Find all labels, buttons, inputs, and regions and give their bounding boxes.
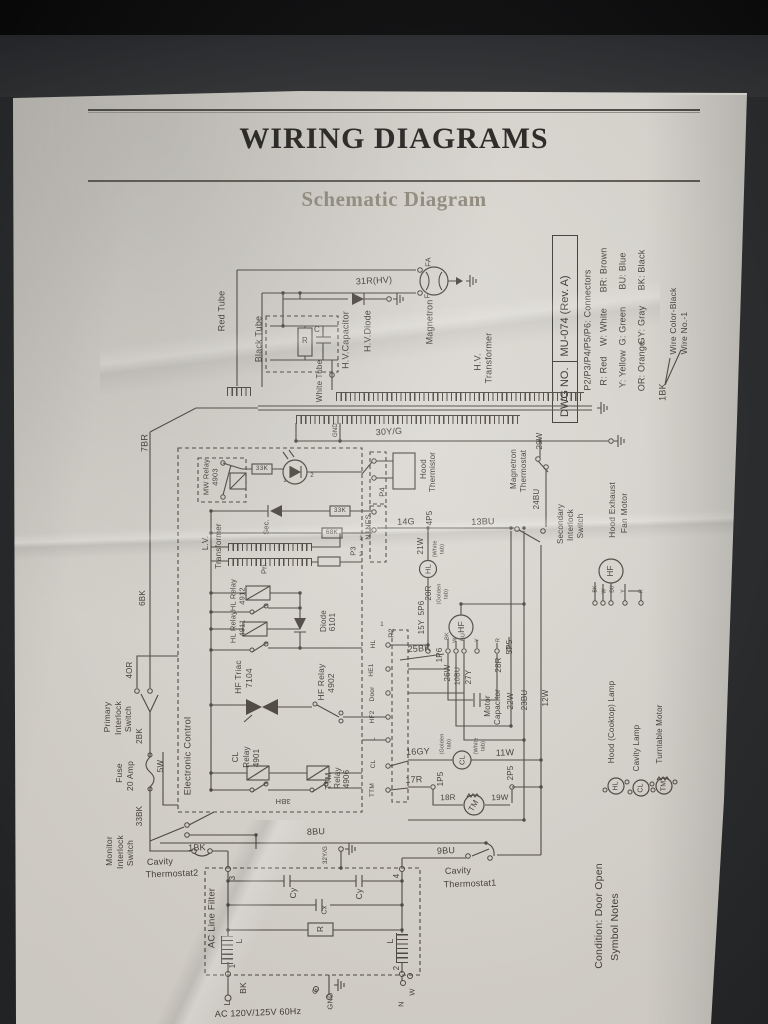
schematic-label: 4906 bbox=[343, 770, 351, 789]
schematic-label: 4901 bbox=[253, 749, 261, 768]
schematic-label: W bbox=[453, 637, 459, 642]
schematic-label: GY: Gray bbox=[638, 306, 647, 345]
schematic-label: OR: Orange bbox=[638, 341, 647, 392]
schematic-label: 4912 bbox=[238, 587, 246, 605]
manual-page: WIRING DIAGRAMS Schematic Diagram DWG NO… bbox=[0, 0, 768, 1024]
secondary-interlock-label: Secondary bbox=[557, 504, 565, 544]
schematic-label: 5W bbox=[157, 760, 165, 772]
schematic-label: R bbox=[316, 926, 325, 932]
schematic-label: 22W bbox=[507, 692, 515, 709]
schematic-label: Y bbox=[475, 638, 481, 642]
schematic-label: L bbox=[235, 939, 244, 944]
schematic-label: 1P6 bbox=[436, 648, 444, 663]
schematic-label: Sec. bbox=[262, 519, 270, 535]
ttm-relay-label: TTM bbox=[325, 772, 333, 789]
magnetron-label: Magnetron bbox=[426, 300, 435, 345]
schematic-label: 5P6 bbox=[418, 601, 426, 616]
schematic-label: 6101 bbox=[329, 613, 337, 632]
schematic-label: Thermistor bbox=[429, 452, 437, 492]
schematic-label: Transformer bbox=[215, 523, 223, 568]
schematic-label: 15Y bbox=[418, 620, 426, 635]
mw-relay-label: MW Relay bbox=[202, 459, 210, 495]
monitor-interlock-label: Monitor bbox=[105, 836, 114, 866]
schematic-label: Y: Yellow bbox=[619, 350, 628, 388]
schematic-label: 7104 bbox=[245, 668, 254, 688]
schematic-label: 1 bbox=[359, 536, 363, 542]
red-tube-label: Red Tube bbox=[218, 291, 227, 332]
schematic-label: L bbox=[224, 1001, 232, 1006]
schematic-label: 11W bbox=[496, 748, 515, 758]
schematic-label: Relay bbox=[243, 746, 251, 767]
schematic-label: HL bbox=[371, 640, 378, 649]
schematic-label: 4P5 bbox=[426, 511, 434, 526]
schematic-label: 18R bbox=[440, 794, 456, 803]
motor-capacitor-label: Motor bbox=[484, 695, 492, 716]
black-tube-label: Black Tube bbox=[255, 316, 264, 363]
filter-choke-left bbox=[221, 936, 233, 964]
schematic-label: TM bbox=[661, 781, 668, 792]
schematic-label: FA bbox=[424, 257, 432, 267]
schematic-label: R bbox=[496, 638, 502, 642]
schematic-label: 27Y bbox=[465, 670, 473, 685]
schematic-label: 8BU bbox=[307, 827, 325, 837]
schematic-label: GND bbox=[333, 423, 339, 437]
schematic-label: HF2 bbox=[370, 711, 377, 724]
photo-top-black-bar bbox=[0, 0, 768, 35]
schematic-label: G bbox=[311, 988, 319, 994]
schematic-label: tab) bbox=[440, 544, 446, 554]
photo-background-shade bbox=[0, 35, 768, 97]
schematic-label: N bbox=[397, 1001, 405, 1007]
cavity-thermostat1-label: Cavity bbox=[445, 866, 472, 876]
schematic-label: Interlock bbox=[567, 509, 575, 541]
schematic-label: 4OR bbox=[126, 661, 134, 678]
schematic-label: F bbox=[423, 294, 431, 299]
schematic-label: 9BU bbox=[437, 846, 455, 856]
schematic-label: R: Red bbox=[600, 356, 609, 385]
schematic-label: BR: Brown bbox=[600, 248, 609, 293]
schematic-label: C bbox=[314, 326, 320, 334]
turntable-motor-legend: Turntable Motor bbox=[656, 704, 664, 763]
schematic-label: W bbox=[603, 589, 608, 594]
schematic-label: 23BU bbox=[521, 690, 529, 711]
schematic-label: 10BU bbox=[455, 667, 462, 685]
schematic-label: 29W bbox=[536, 432, 544, 449]
schematic-label: 19W bbox=[491, 794, 508, 803]
cavity-lamp-legend: Cavity Lamp bbox=[633, 725, 641, 772]
schematic-label: CL bbox=[458, 755, 466, 765]
schematic-label: 68K bbox=[326, 530, 338, 537]
schematic-label: 12W bbox=[542, 689, 550, 706]
schematic-label: 33K bbox=[256, 466, 268, 473]
schematic-label: HF bbox=[607, 565, 615, 576]
schematic-label: 2 bbox=[310, 473, 314, 479]
schematic-label: Switch bbox=[577, 514, 585, 539]
schematic-label: 16GY bbox=[406, 747, 430, 757]
hl-relay-4912-label: HL Relay bbox=[229, 579, 237, 611]
photographed-manual-page: { "page": {"title": "WIRING DIAGRAMS", "… bbox=[0, 0, 768, 1024]
schematic-label: 24BU bbox=[533, 489, 541, 510]
schematic-label: 6BK bbox=[139, 590, 147, 606]
hood-exhaust-fan-label: Hood Exhaust bbox=[608, 482, 617, 538]
schematic-label: 14G bbox=[397, 517, 415, 527]
schematic-label: Cy bbox=[355, 889, 364, 900]
wire-example-number: Wire No.-1 bbox=[680, 312, 689, 355]
diode-6101-label: Diode bbox=[320, 610, 328, 632]
schematic-label: BU bbox=[461, 633, 467, 641]
schematic-label: HE1 bbox=[369, 663, 376, 676]
schematic-label: tab) bbox=[481, 741, 487, 751]
fuse-label: Fuse bbox=[115, 763, 124, 783]
schematic-label: G: Green bbox=[619, 307, 628, 346]
schematic-label: Thermostat1 bbox=[443, 879, 496, 890]
schematic-label: L bbox=[386, 939, 395, 944]
schematic-label: 1 bbox=[380, 622, 384, 628]
filter-choke-right bbox=[396, 933, 408, 963]
schematic-label: Capacitor bbox=[494, 689, 502, 725]
schematic-label: BU bbox=[611, 585, 616, 592]
schematic-label: HL bbox=[613, 781, 620, 790]
schematic-label: Thermostat bbox=[520, 450, 528, 492]
schematic-label: 2P5 bbox=[507, 766, 515, 781]
schematic-label: Interlock bbox=[116, 835, 125, 869]
schematic-label: Door bbox=[370, 687, 377, 702]
schematic-label: BK bbox=[239, 982, 248, 994]
electronic-control-label: Electronic Control bbox=[183, 717, 193, 796]
schematic-label: 26W bbox=[444, 664, 452, 681]
schematic-label: L bbox=[371, 737, 378, 741]
schematic-label: Interlock bbox=[114, 701, 123, 735]
schematic-label: R bbox=[640, 589, 645, 593]
schematic-label: BK bbox=[445, 632, 451, 640]
schematic-label: 4903 bbox=[211, 468, 219, 486]
cavity-thermostat2-label: Cavity bbox=[147, 857, 174, 867]
tube-coil bbox=[227, 387, 251, 396]
schematic-label: 33BK bbox=[136, 806, 144, 826]
schematic-label: (Golden bbox=[440, 734, 446, 755]
schematic-label: 4902 bbox=[327, 673, 336, 693]
white-tube-label: White Tube bbox=[316, 360, 324, 402]
hf-relay-label: HF Relay bbox=[317, 663, 326, 700]
ac-line-filter-label: AC Line Filter bbox=[207, 888, 217, 948]
wire-example-color: Wire Color-Black bbox=[669, 288, 678, 355]
schematic-label: 1 bbox=[283, 478, 287, 484]
condition-note: Condition: Door Open bbox=[594, 863, 605, 969]
schematic-label: 33K bbox=[334, 508, 346, 515]
schematic-label: Switch bbox=[126, 840, 135, 866]
schematic-label: Fan Motor bbox=[620, 493, 629, 534]
schematic-label: Switch bbox=[124, 706, 133, 732]
schematic-label: Cy bbox=[289, 888, 298, 899]
schematic-drawing bbox=[0, 0, 768, 1024]
schematic-label: Relay bbox=[334, 767, 342, 788]
hv-secondary-winding bbox=[336, 392, 584, 401]
hv-primary-winding bbox=[296, 415, 520, 424]
schematic-label: 4911 bbox=[238, 620, 246, 637]
schematic-label: 25BK bbox=[407, 644, 430, 654]
schematic-label: CL bbox=[371, 760, 378, 769]
schematic-label: Transformer bbox=[485, 333, 494, 384]
hv-diode-label: H.V.Diode bbox=[364, 310, 373, 352]
schematic-label: 4 bbox=[393, 874, 401, 879]
schematic-label: TTM bbox=[370, 783, 377, 797]
hood-lamp-legend: Hood (Cooktop) Lamp bbox=[608, 681, 616, 764]
hl-relay-4911-label: HL Relay bbox=[229, 611, 237, 643]
primary-interlock-label: Primary bbox=[103, 702, 112, 733]
schematic-label: 30Y/G bbox=[376, 427, 403, 437]
schematic-label: 2BK bbox=[136, 728, 144, 744]
schematic-label: BU: Blue bbox=[619, 252, 628, 289]
p2-connector-label: P2 bbox=[387, 628, 395, 638]
schematic-label: 32Y/G bbox=[323, 846, 329, 864]
schematic-label: 28R bbox=[495, 657, 503, 672]
schematic-label: 17R bbox=[405, 775, 422, 785]
schematic-label: (Golden bbox=[437, 584, 443, 605]
schematic-label: 20R bbox=[425, 585, 433, 600]
hv-transformer-label: H.V. bbox=[474, 353, 483, 370]
schematic-label: GND bbox=[326, 992, 334, 1009]
schematic-label: N1NFS bbox=[364, 514, 372, 540]
schematic-label: 20 Amp bbox=[126, 761, 135, 791]
schematic-label: 3 bbox=[229, 876, 237, 881]
schematic-label: tab) bbox=[444, 589, 450, 599]
schematic-label: BK: Black bbox=[638, 250, 647, 291]
schematic-label: W: White bbox=[600, 308, 609, 346]
schematic-label: HL bbox=[424, 564, 432, 574]
lv-transformer-label: L.V. bbox=[202, 536, 210, 550]
schematic-label: 7BR bbox=[141, 434, 150, 452]
lv-primary-winding bbox=[228, 558, 312, 566]
schematic-label: 2 bbox=[359, 552, 363, 558]
wire-example-code: 1BK bbox=[659, 383, 668, 401]
schematic-label: Y bbox=[622, 589, 627, 593]
schematic-label: tab) bbox=[447, 739, 453, 749]
hood-thermistor-label: Hood bbox=[420, 459, 428, 479]
schematic-label: Thermostat2 bbox=[145, 869, 198, 880]
hv-capacitor-label: H.V.Capacitor bbox=[342, 311, 351, 369]
schematic-label: 21W bbox=[417, 537, 425, 554]
schematic-label: 31R(HV) bbox=[356, 276, 393, 287]
hf-triac-label: HF Triac bbox=[234, 660, 243, 694]
schematic-label: (White bbox=[433, 540, 439, 557]
p4-connector-label: P4 bbox=[378, 487, 386, 497]
schematic-label: 3BH bbox=[275, 797, 290, 805]
schematic-label: W bbox=[408, 988, 416, 995]
connectors-note: P2/P3/P4/P5/P6: Connectors bbox=[584, 269, 593, 390]
schematic-label: 13BU bbox=[471, 517, 495, 527]
lv-secondary-winding bbox=[228, 543, 312, 551]
schematic-label: 2 bbox=[393, 966, 401, 971]
schematic-label: 1BK bbox=[188, 843, 206, 853]
p3-connector-label: P3 bbox=[349, 546, 357, 556]
schematic-label: 5P5 bbox=[506, 640, 514, 655]
symbol-notes-title: Symbol Notes bbox=[610, 893, 621, 961]
schematic-label: Pri. bbox=[260, 562, 268, 574]
schematic-label: BK bbox=[594, 585, 599, 592]
schematic-label: (White bbox=[474, 737, 480, 754]
cl-relay-label: CL bbox=[232, 752, 240, 763]
magnetron-thermostat-label: Magnetron bbox=[510, 449, 518, 489]
schematic-label: R bbox=[302, 337, 308, 345]
schematic-label: CL bbox=[638, 783, 645, 792]
schematic-label: 1 bbox=[229, 964, 237, 969]
schematic-label: 1P5 bbox=[437, 772, 445, 787]
schematic-label: Cx bbox=[322, 906, 329, 915]
schematic-label: HF bbox=[457, 621, 466, 633]
